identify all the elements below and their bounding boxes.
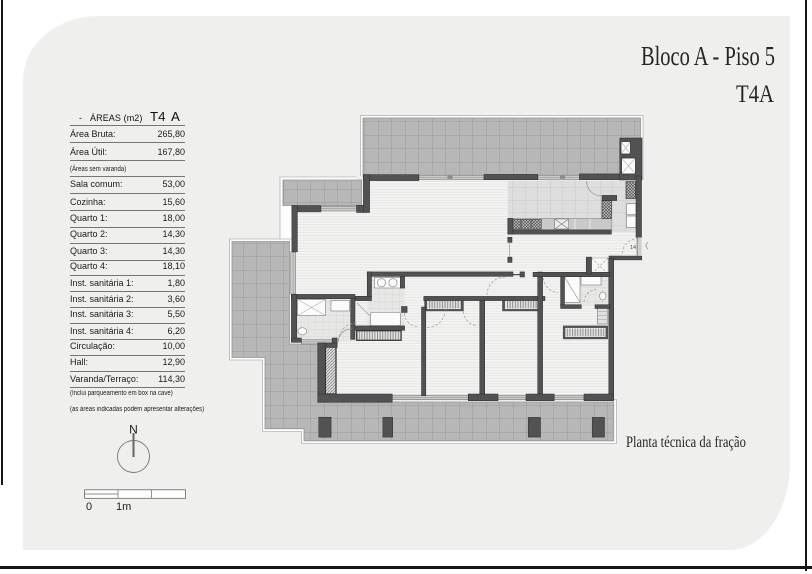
- svg-text:14: 14: [630, 245, 636, 251]
- svg-text:1m: 1m: [116, 501, 131, 513]
- svg-text:N: N: [129, 423, 138, 437]
- svg-text:0: 0: [86, 501, 92, 513]
